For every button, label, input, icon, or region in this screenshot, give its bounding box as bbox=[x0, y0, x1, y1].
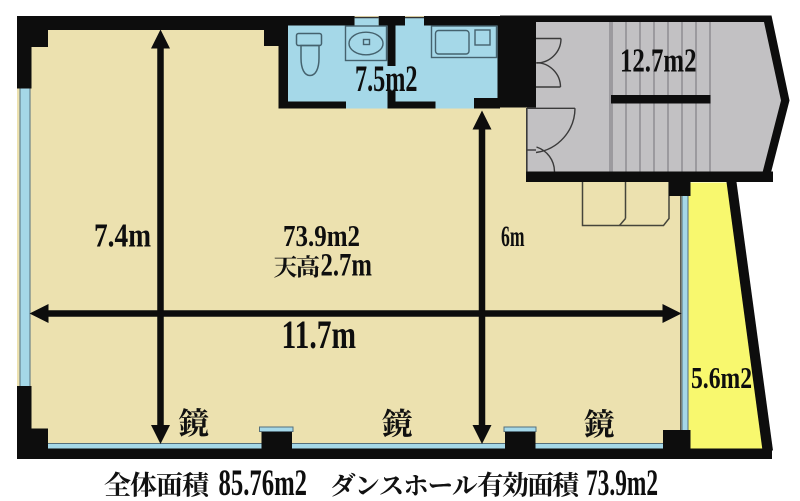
svg-text:7.4m: 7.4m bbox=[94, 218, 151, 255]
svg-text:2.7m: 2.7m bbox=[321, 248, 373, 284]
svg-text:12.7m2: 12.7m2 bbox=[620, 43, 697, 80]
svg-text:6m: 6m bbox=[501, 220, 525, 253]
svg-text:73.9m2: 73.9m2 bbox=[586, 463, 658, 501]
svg-text:11.7m: 11.7m bbox=[282, 312, 357, 357]
svg-text:7.5m2: 7.5m2 bbox=[355, 59, 418, 100]
svg-text:5.6m2: 5.6m2 bbox=[691, 360, 752, 395]
svg-text:85.76m2: 85.76m2 bbox=[219, 463, 308, 501]
